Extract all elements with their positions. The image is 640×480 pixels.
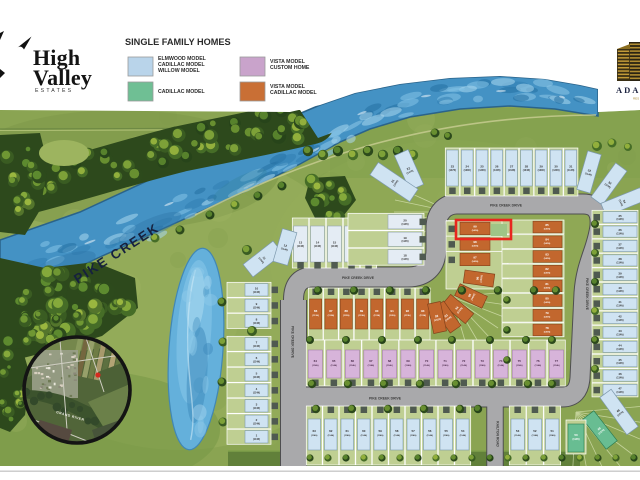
svg-text:(114ft): (114ft) (253, 291, 260, 294)
svg-text:25: 25 (480, 165, 484, 169)
svg-text:47: 47 (618, 387, 622, 391)
svg-text:70: 70 (425, 359, 429, 363)
svg-text:(114ft): (114ft) (616, 261, 623, 264)
svg-text:(114ft): (114ft) (253, 322, 260, 325)
svg-text:18: 18 (403, 253, 407, 257)
svg-text:(114ft): (114ft) (479, 364, 486, 367)
svg-text:PIKE CREEK DRIVE: PIKE CREEK DRIVE (490, 204, 523, 208)
svg-text:(141ft): (141ft) (544, 286, 551, 289)
svg-text:65: 65 (332, 359, 336, 363)
svg-text:41: 41 (618, 300, 622, 304)
svg-text:(147ft): (147ft) (449, 169, 456, 172)
svg-text:75: 75 (518, 359, 522, 363)
svg-text:44: 44 (618, 343, 622, 347)
svg-text:(114ft): (114ft) (361, 434, 368, 437)
svg-text:(114ft): (114ft) (443, 434, 450, 437)
svg-text:78: 78 (545, 326, 549, 330)
svg-text:(114ft): (114ft) (616, 333, 623, 336)
svg-text:(114ft): (114ft) (368, 364, 375, 367)
svg-text:42: 42 (618, 315, 622, 319)
svg-text:(114ft): (114ft) (394, 434, 401, 437)
svg-text:(114ft): (114ft) (616, 247, 623, 250)
svg-text:(114ft): (114ft) (616, 276, 623, 279)
svg-text:(114ft): (114ft) (253, 438, 260, 441)
svg-text:57: 57 (412, 429, 416, 433)
svg-text:(114ft): (114ft) (349, 364, 356, 367)
svg-text:92: 92 (406, 309, 410, 313)
svg-text:66: 66 (351, 359, 355, 363)
svg-text:(141ft): (141ft) (544, 330, 551, 333)
svg-text:35: 35 (618, 214, 622, 218)
svg-text:(113ft): (113ft) (404, 314, 411, 317)
svg-text:(114ft): (114ft) (253, 422, 260, 425)
svg-text:(113ft): (113ft) (328, 314, 335, 317)
svg-text:93: 93 (421, 309, 425, 313)
svg-text:85: 85 (545, 223, 549, 227)
svg-text:64: 64 (314, 359, 318, 363)
svg-text:(114ft): (114ft) (442, 364, 449, 367)
svg-text:13: 13 (299, 241, 303, 245)
svg-text:(141ft): (141ft) (544, 242, 551, 245)
svg-text:77: 77 (555, 359, 559, 363)
svg-text:91: 91 (390, 309, 394, 313)
svg-text:CUSTOM HOME: CUSTOM HOME (270, 65, 310, 71)
svg-text:67: 67 (369, 359, 373, 363)
svg-text:(114ft): (114ft) (344, 434, 351, 437)
svg-text:(114ft): (114ft) (253, 345, 260, 348)
svg-text:(113ft): (113ft) (312, 314, 319, 317)
svg-text:(134ft): (134ft) (493, 169, 500, 172)
svg-text:(141ft): (141ft) (472, 244, 479, 247)
svg-text:RES: RES (633, 97, 639, 101)
svg-text:(114ft): (114ft) (377, 434, 384, 437)
svg-text:38: 38 (618, 257, 622, 261)
svg-text:(113ft): (113ft) (358, 314, 365, 317)
svg-text:PIKE CREEK DRIVE: PIKE CREEK DRIVE (585, 278, 589, 311)
svg-text:Valley: Valley (33, 65, 92, 90)
svg-text:39: 39 (618, 271, 622, 275)
svg-text:(114ft): (114ft) (253, 376, 260, 379)
svg-text:(114ft): (114ft) (253, 360, 260, 363)
svg-text:SINGLE FAMILY HOMES: SINGLE FAMILY HOMES (125, 37, 231, 47)
svg-text:40: 40 (618, 286, 622, 290)
svg-text:23: 23 (451, 165, 455, 169)
svg-text:(141ft): (141ft) (544, 272, 551, 275)
svg-text:(114ft): (114ft) (460, 364, 467, 367)
svg-text:ADAM: ADAM (616, 85, 640, 95)
svg-text:(114ft): (114ft) (427, 434, 434, 437)
svg-text:14: 14 (316, 241, 320, 245)
svg-text:97: 97 (473, 255, 477, 259)
svg-text:(114ft): (114ft) (401, 223, 408, 226)
svg-text:(114ft): (114ft) (253, 391, 260, 394)
svg-text:98: 98 (473, 240, 477, 244)
svg-text:36: 36 (618, 228, 622, 232)
svg-text:27: 27 (510, 165, 514, 169)
svg-text:(141ft): (141ft) (544, 316, 551, 319)
svg-text:88: 88 (345, 309, 349, 313)
svg-text:45: 45 (618, 358, 622, 362)
svg-text:(141ft): (141ft) (472, 229, 479, 232)
svg-text:61: 61 (346, 429, 350, 433)
svg-text:(114ft): (114ft) (423, 364, 430, 367)
svg-text:(114ft): (114ft) (253, 407, 260, 410)
svg-text:62: 62 (329, 429, 333, 433)
svg-text:20: 20 (403, 218, 407, 222)
svg-text:86: 86 (314, 309, 318, 313)
svg-text:30: 30 (554, 165, 558, 169)
svg-text:(114ft): (114ft) (314, 245, 321, 248)
svg-text:15: 15 (333, 241, 337, 245)
svg-text:(113ft): (113ft) (343, 314, 350, 317)
svg-text:(114ft): (114ft) (386, 364, 393, 367)
svg-text:59: 59 (379, 429, 383, 433)
svg-text:CADILLAC MODEL: CADILLAC MODEL (158, 89, 206, 95)
svg-text:(114ft): (114ft) (616, 348, 623, 351)
svg-text:63: 63 (313, 429, 317, 433)
svg-text:(114ft): (114ft) (616, 233, 623, 236)
svg-text:81: 81 (545, 282, 549, 286)
svg-text:(114ft): (114ft) (616, 319, 623, 322)
svg-text:(114ft): (114ft) (616, 391, 623, 394)
svg-text:(114ft): (114ft) (514, 434, 521, 437)
svg-text:(114ft): (114ft) (616, 218, 623, 221)
svg-text:(114ft): (114ft) (401, 258, 408, 261)
svg-text:89: 89 (360, 309, 364, 313)
svg-text:90: 90 (375, 309, 379, 313)
svg-text:(114ft): (114ft) (460, 434, 467, 437)
svg-text:(114ft): (114ft) (498, 364, 505, 367)
svg-text:68: 68 (388, 359, 392, 363)
svg-text:ESTATES: ESTATES (35, 88, 73, 94)
svg-text:WILLOW MODEL: WILLOW MODEL (158, 68, 201, 74)
svg-text:(134ft): (134ft) (508, 169, 515, 172)
svg-text:24: 24 (466, 165, 470, 169)
svg-text:(114ft): (114ft) (616, 377, 623, 380)
svg-text:82: 82 (545, 267, 549, 271)
svg-text:58: 58 (395, 429, 399, 433)
svg-text:(114ft): (114ft) (331, 364, 338, 367)
svg-text:(114ft): (114ft) (410, 434, 417, 437)
svg-text:80: 80 (545, 297, 549, 301)
svg-text:31: 31 (569, 165, 573, 169)
svg-text:52: 52 (533, 429, 537, 433)
svg-text:(114ft): (114ft) (516, 364, 523, 367)
svg-text:RAILTON ROAD: RAILTON ROAD (496, 421, 500, 447)
svg-text:PIKE CREEK DRIVE: PIKE CREEK DRIVE (342, 276, 375, 280)
svg-text:(114ft): (114ft) (253, 306, 260, 309)
svg-text:37: 37 (618, 243, 622, 247)
svg-text:PIKE CREEK DRIVE: PIKE CREEK DRIVE (369, 397, 402, 401)
svg-text:(134ft): (134ft) (464, 169, 471, 172)
svg-text:26: 26 (495, 165, 499, 169)
svg-text:60: 60 (362, 429, 366, 433)
svg-text:(134ft): (134ft) (538, 169, 545, 172)
svg-text:(113ft): (113ft) (420, 314, 427, 317)
svg-text:(114ft): (114ft) (549, 434, 556, 437)
svg-text:(114ft): (114ft) (572, 438, 579, 441)
svg-text:72: 72 (462, 359, 466, 363)
svg-text:99: 99 (473, 224, 477, 228)
svg-text:(114ft): (114ft) (535, 364, 542, 367)
svg-text:83: 83 (545, 252, 549, 256)
svg-text:79: 79 (545, 311, 549, 315)
svg-text:(134ft): (134ft) (478, 169, 485, 172)
svg-text:(141ft): (141ft) (544, 301, 551, 304)
svg-text:(141ft): (141ft) (544, 257, 551, 260)
svg-text:(114ft): (114ft) (616, 290, 623, 293)
svg-text:(114ft): (114ft) (311, 434, 318, 437)
svg-text:(114ft): (114ft) (297, 245, 304, 248)
svg-text:(114ft): (114ft) (532, 434, 539, 437)
svg-text:(114ft): (114ft) (567, 169, 574, 172)
svg-text:(114ft): (114ft) (616, 362, 623, 365)
svg-text:53: 53 (516, 429, 520, 433)
svg-text:71: 71 (443, 359, 447, 363)
svg-text:(134ft): (134ft) (552, 169, 559, 172)
svg-text:(114ft): (114ft) (312, 364, 319, 367)
svg-text:28: 28 (525, 165, 529, 169)
svg-text:69: 69 (406, 359, 410, 363)
svg-text:87: 87 (329, 309, 333, 313)
svg-text:84: 84 (545, 238, 549, 242)
svg-text:(141ft): (141ft) (472, 260, 479, 263)
svg-text:50: 50 (574, 433, 578, 437)
svg-text:(114ft): (114ft) (328, 434, 335, 437)
svg-text:CADILLAC MODEL: CADILLAC MODEL (270, 90, 318, 96)
svg-text:73: 73 (481, 359, 485, 363)
svg-text:74: 74 (499, 359, 503, 363)
svg-text:(113ft): (113ft) (389, 314, 396, 317)
svg-text:43: 43 (618, 329, 622, 333)
svg-text:19: 19 (403, 236, 407, 240)
svg-text:(113ft): (113ft) (374, 314, 381, 317)
svg-text:56: 56 (428, 429, 432, 433)
svg-text:(134ft): (134ft) (523, 169, 530, 172)
svg-text:(114ft): (114ft) (401, 240, 408, 243)
svg-text:46: 46 (618, 372, 622, 376)
svg-text:54: 54 (461, 429, 465, 433)
svg-text:(114ft): (114ft) (616, 305, 623, 308)
svg-text:55: 55 (445, 429, 449, 433)
svg-text:76: 76 (536, 359, 540, 363)
svg-text:(114ft): (114ft) (405, 364, 412, 367)
svg-text:10: 10 (255, 286, 259, 290)
svg-text:PIKE CREEK DRIVE: PIKE CREEK DRIVE (291, 326, 295, 359)
svg-text:51: 51 (551, 429, 555, 433)
svg-text:(141ft): (141ft) (544, 227, 551, 230)
svg-text:29: 29 (540, 165, 544, 169)
svg-text:(114ft): (114ft) (553, 364, 560, 367)
svg-text:(114ft): (114ft) (331, 245, 338, 248)
